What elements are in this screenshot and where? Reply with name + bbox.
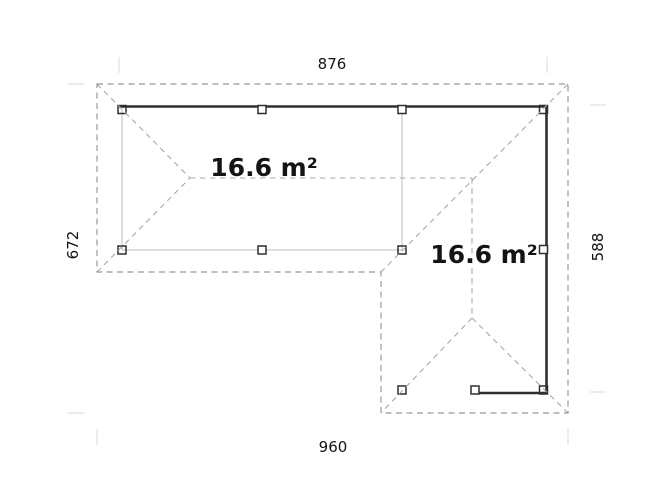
hip-line-bottom-wing-left xyxy=(381,318,472,413)
post-top-mid2 xyxy=(398,106,406,114)
floor-plan: 876 960 672 588 16.6 m² 16.6 m² xyxy=(0,0,667,500)
dimension-top-label: 876 xyxy=(318,55,347,73)
floor-plan-canvas: 876 960 672 588 16.6 m² 16.6 m² xyxy=(0,0,667,500)
post-top-mid xyxy=(258,106,266,114)
post-bottom-mid xyxy=(471,386,479,394)
dimension-bottom-label: 960 xyxy=(319,438,348,456)
post-mid-mid xyxy=(258,246,266,254)
hip-line-bottom-left xyxy=(97,178,190,272)
post-bottom-left xyxy=(398,386,406,394)
post-mid-right xyxy=(540,246,548,254)
area-label-left-wing: 16.6 m² xyxy=(210,153,317,182)
hip-line-bottom-wing-right xyxy=(472,318,568,413)
dimension-right-label: 588 xyxy=(589,233,607,262)
hip-line-top-left xyxy=(97,84,190,178)
area-label-right-wing: 16.6 m² xyxy=(430,240,537,269)
dimension-left-label: 672 xyxy=(64,231,82,260)
